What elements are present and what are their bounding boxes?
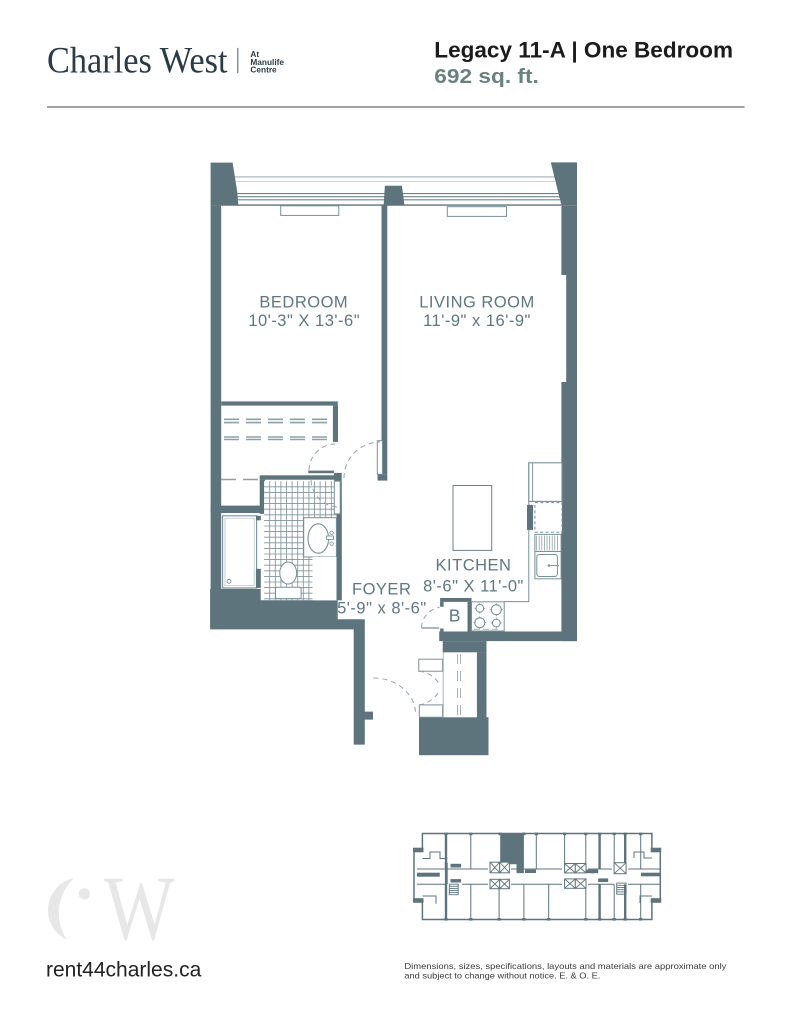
svg-text:W: W xyxy=(104,858,175,960)
svg-text:8'-6" X 11'-0": 8'-6" X 11'-0" xyxy=(423,577,524,595)
svg-text:11'-9" x 16'-9": 11'-9" x 16'-9" xyxy=(423,312,531,330)
svg-text:and subject to change without: and subject to change without notice. E.… xyxy=(404,971,600,981)
svg-text:B: B xyxy=(449,606,461,626)
svg-text:FOYER: FOYER xyxy=(352,580,411,598)
svg-text:Legacy 11-A | One Bedroom: Legacy 11-A | One Bedroom xyxy=(434,37,733,62)
svg-text:rent44charles.ca: rent44charles.ca xyxy=(46,959,202,982)
svg-text:BEDROOM: BEDROOM xyxy=(259,294,348,312)
svg-text:10'-3" X 13'-6": 10'-3" X 13'-6" xyxy=(248,312,360,330)
svg-text:5'-9" x 8'-6": 5'-9" x 8'-6" xyxy=(337,600,427,618)
svg-text:KITCHEN: KITCHEN xyxy=(436,557,512,575)
svg-text:Centre: Centre xyxy=(250,65,277,75)
svg-text:Dimensions, sizes, specificati: Dimensions, sizes, specifications, layou… xyxy=(404,961,727,971)
svg-text:LIVING ROOM: LIVING ROOM xyxy=(419,294,535,312)
svg-text:692 sq. ft.: 692 sq. ft. xyxy=(434,65,539,88)
svg-text:Charles West: Charles West xyxy=(47,41,228,82)
